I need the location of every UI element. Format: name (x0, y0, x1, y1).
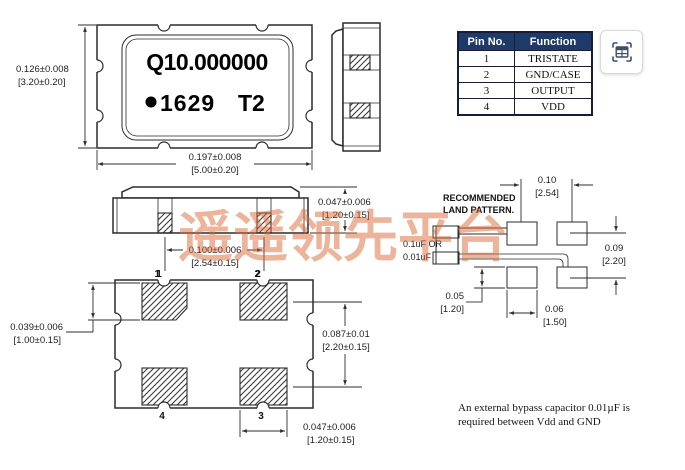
marking-frequency: Q10.000000 (146, 49, 268, 75)
note-line2: required between Vdd and GND (458, 415, 630, 429)
trace-to-pad3-inner (459, 259, 563, 267)
land-pattern-title-line1: RECOMMENDED (443, 193, 516, 203)
bypass-capacitor-terminal-top (433, 226, 459, 238)
bottom-pad-2 (240, 283, 287, 320)
front-view-drawing: 0.047±0.006 [1.20±0.15] 0.100±0.006 [2.5… (113, 187, 394, 280)
table-capture-icon (610, 40, 634, 64)
dim-row-pitch-in: 0.087±0.01 (322, 329, 369, 340)
land-pad-2 (557, 222, 587, 245)
pin-function-cell: TRISTATE (515, 51, 593, 67)
dim-pitch-mm: [2.54±0.15] (191, 258, 238, 269)
side-view-drawing (332, 23, 380, 151)
dim-pad-width-in: 0.047±0.006 (303, 422, 356, 433)
bottom-pad-1 (142, 283, 187, 320)
dim-pad-height-mm: [1.00±0.15] (14, 335, 61, 346)
marking-lotcode: T2 (238, 90, 265, 116)
dim-topview-height-mm: [3.20±0.20] (18, 77, 65, 88)
dim-topview-width-mm: [5.00±0.20] (191, 165, 238, 176)
table-capture-button[interactable] (600, 30, 643, 74)
table-row: 3 OUTPUT (458, 83, 592, 99)
pin-number-cell: 1 (458, 51, 515, 67)
pin-number-cell: 2 (458, 67, 515, 83)
bottom-view-drawing: 1 2 4 3 0.039±0.006 [1.00±0.15] 0.087±0.… (10, 269, 374, 446)
bottom-pin4-label: 4 (159, 411, 165, 422)
bottom-pad-3 (240, 368, 287, 405)
land-pattern-title-line2: LAND PATTERN. (443, 205, 514, 215)
dim-land-pad-w-mm: [1.50] (543, 317, 567, 328)
capacitor-value-line1: 0.1uF OR (403, 239, 443, 249)
marking-datecode: 1629 (160, 90, 215, 116)
dim-pad-width-mm: [1.20±0.15] (307, 435, 354, 446)
bottom-pin2-label: 2 (255, 269, 261, 280)
pin-function-cell: OUTPUT (515, 83, 593, 99)
capacitor-value-line2: 0.01uF (403, 252, 432, 262)
dim-land-pitch-x-mm: [2.54] (535, 188, 559, 199)
bypass-capacitor-note: An external bypass capacitor 0.01µF is r… (458, 401, 630, 429)
dim-land-pad-w-in: 0.06 (545, 304, 564, 315)
dim-land-pad-h-mm: [1.20] (440, 304, 464, 315)
table-row: 1 TRISTATE (458, 51, 592, 67)
pin-function-cell: VDD (515, 99, 593, 116)
pin-table-header-function: Function (515, 32, 593, 51)
land-pad-3 (557, 267, 587, 288)
pin-function-cell: GND/CASE (515, 67, 593, 83)
dim-row-pitch-mm: [2.20±0.15] (322, 342, 369, 353)
table-row: 2 GND/CASE (458, 67, 592, 83)
front-pad-2 (257, 213, 271, 233)
pin-number-cell: 4 (458, 99, 515, 116)
bottom-pin3-label: 3 (258, 411, 264, 422)
table-row: 4 VDD (458, 99, 592, 116)
trace-to-pad3 (459, 254, 568, 267)
bottom-pad-4 (142, 368, 187, 405)
dim-thickness-mm: [1.20±0.15] (322, 210, 369, 221)
dim-topview-width-in: 0.197±0.008 (189, 152, 242, 163)
side-castellation-pad (350, 55, 370, 70)
side-castellation-pad (350, 103, 370, 118)
dim-land-pad-h-in: 0.05 (446, 291, 465, 302)
dim-land-pitch-y-mm: [2.20] (602, 256, 626, 267)
pin1-marking-dot (146, 97, 157, 108)
dim-topview-height-in: 0.126±0.008 (16, 64, 69, 75)
dim-land-pitch-y-in: 0.09 (605, 243, 624, 254)
pin-function-table: Pin No. Function 1 TRISTATE 2 GND/CASE 3… (457, 31, 593, 116)
trace-to-pad1 (458, 228, 507, 234)
pin-table-header-pin: Pin No. (458, 32, 515, 51)
top-view-drawing: Q10.000000 1629 T2 0.126±0.008 [3.20±0.2… (16, 23, 314, 176)
dim-land-pitch-x-in: 0.10 (538, 175, 557, 186)
dim-pitch-in: 0.100±0.006 (189, 245, 242, 256)
dim-thickness-in: 0.047±0.006 (318, 197, 371, 208)
land-pattern-drawing: RECOMMENDED LAND PATTERN. 0.1uF OR 0.01u… (403, 175, 626, 328)
bottom-pin1-label: 1 (156, 269, 162, 280)
note-line1: An external bypass capacitor 0.01µF is (458, 401, 630, 415)
land-pad-4 (507, 267, 537, 288)
bypass-capacitor-terminal-bottom (433, 252, 459, 264)
pin-number-cell: 3 (458, 83, 515, 99)
pin-table-header-row: Pin No. Function (458, 32, 592, 51)
dim-pad-height-in: 0.039±0.006 (10, 322, 63, 333)
front-pad-1 (158, 213, 172, 233)
datasheet-drawing-page: Q10.000000 1629 T2 0.126±0.008 [3.20±0.2… (0, 0, 685, 470)
land-pad-1 (507, 222, 537, 245)
